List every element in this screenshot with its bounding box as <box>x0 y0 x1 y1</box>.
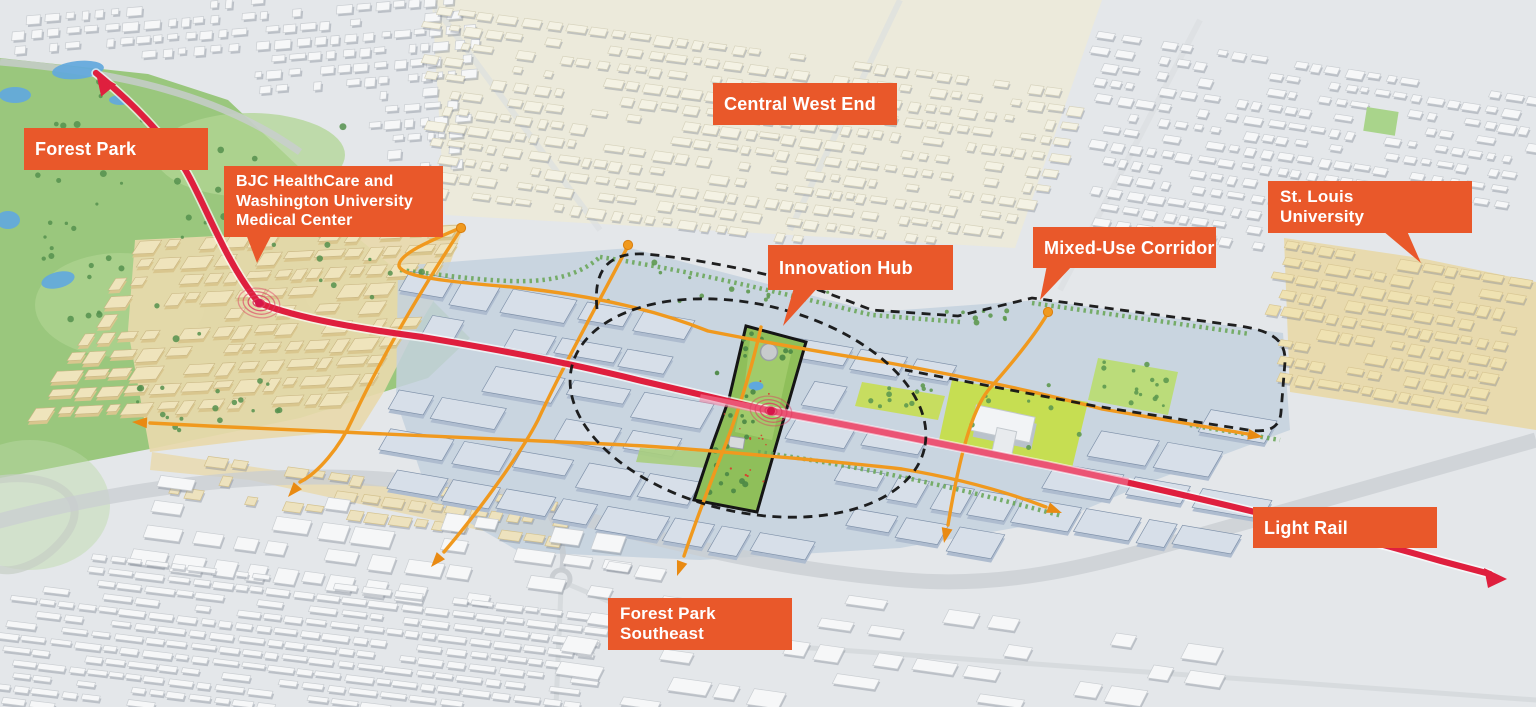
building <box>432 42 448 52</box>
building <box>1210 189 1223 196</box>
building <box>232 28 247 35</box>
tree <box>217 417 223 423</box>
tree <box>988 313 992 317</box>
building <box>409 0 420 8</box>
label-text: Southeast <box>620 624 792 644</box>
building <box>336 5 352 14</box>
building <box>591 533 626 553</box>
building <box>122 22 138 32</box>
building <box>211 15 219 23</box>
building <box>163 49 173 58</box>
building <box>1489 91 1502 99</box>
building <box>256 625 272 632</box>
building <box>251 0 264 4</box>
tree <box>56 178 61 183</box>
building <box>1016 199 1038 210</box>
building <box>45 13 60 21</box>
building <box>242 12 255 19</box>
tree <box>181 236 184 239</box>
building <box>1294 61 1309 69</box>
building <box>861 211 879 220</box>
tree <box>1102 360 1106 364</box>
label-text: BJC HealthCare and <box>236 172 443 192</box>
building <box>1318 96 1332 103</box>
street-node-dot <box>623 240 632 249</box>
tree <box>1132 369 1136 373</box>
building <box>786 218 803 226</box>
building <box>910 201 926 209</box>
building <box>773 68 787 77</box>
building <box>987 228 1003 237</box>
tree <box>232 400 237 405</box>
building <box>287 358 319 367</box>
tree <box>886 391 892 397</box>
building <box>485 679 501 687</box>
tree <box>729 286 735 292</box>
tree <box>136 400 139 403</box>
building <box>1279 290 1296 300</box>
tree <box>1102 385 1106 389</box>
tree <box>719 481 723 485</box>
tree <box>1101 365 1106 370</box>
building <box>409 44 416 53</box>
tree <box>768 393 770 395</box>
tree <box>154 303 159 308</box>
tree <box>215 187 221 193</box>
building <box>1026 101 1045 111</box>
tree <box>160 412 166 418</box>
building <box>313 82 321 91</box>
building <box>748 48 761 55</box>
building <box>200 31 213 40</box>
building <box>617 64 630 72</box>
tree <box>54 122 59 127</box>
building <box>167 34 177 40</box>
tree <box>724 413 726 415</box>
tree <box>888 398 892 402</box>
building <box>534 86 552 96</box>
tree <box>339 123 346 130</box>
building <box>308 52 321 61</box>
building <box>1117 97 1134 107</box>
building <box>812 205 830 215</box>
building <box>369 121 381 127</box>
building <box>272 55 285 62</box>
tree <box>909 401 914 406</box>
tree <box>257 378 263 384</box>
tree <box>915 389 919 393</box>
building <box>169 19 177 27</box>
building <box>31 30 42 39</box>
building <box>26 15 40 25</box>
tree <box>715 371 720 376</box>
building <box>360 48 371 57</box>
building <box>514 133 526 141</box>
building <box>547 22 563 31</box>
building <box>424 102 440 108</box>
tree <box>272 243 276 247</box>
building <box>91 554 107 561</box>
building <box>219 30 227 38</box>
tree <box>887 386 891 390</box>
building <box>901 150 914 158</box>
label-text: Light Rail <box>1264 519 1437 537</box>
label-bjc-medical-center: BJC HealthCare and Washington University… <box>224 166 443 237</box>
label-text: Medical Center <box>236 211 443 231</box>
building <box>1044 87 1062 96</box>
building <box>544 170 566 181</box>
building <box>1228 145 1239 152</box>
building <box>474 517 499 530</box>
tree <box>1163 377 1169 383</box>
building <box>231 460 249 469</box>
tree <box>826 291 829 294</box>
building <box>662 218 672 224</box>
building <box>894 67 910 76</box>
tree <box>1162 404 1165 407</box>
building <box>193 17 203 24</box>
tree <box>186 214 192 220</box>
building <box>649 51 665 60</box>
building <box>65 41 79 48</box>
building <box>210 0 217 8</box>
building <box>49 43 57 52</box>
building <box>186 32 196 39</box>
building <box>935 155 950 162</box>
building <box>131 687 146 694</box>
building <box>444 0 454 5</box>
building <box>289 68 301 75</box>
tree <box>762 438 764 440</box>
building <box>111 8 118 14</box>
building <box>336 356 368 365</box>
tree <box>779 354 785 360</box>
building <box>634 66 646 72</box>
tree <box>48 253 54 259</box>
building <box>856 128 869 136</box>
tree <box>118 265 124 271</box>
building <box>144 20 161 29</box>
building <box>374 61 386 67</box>
tree <box>50 246 54 250</box>
tree <box>106 255 112 261</box>
label-text: Mixed-Use Corridor <box>1044 239 1216 257</box>
tree <box>370 295 375 300</box>
building <box>1147 164 1162 172</box>
building <box>967 93 982 101</box>
building <box>260 11 267 19</box>
tree <box>745 394 749 398</box>
building <box>902 167 917 176</box>
tree <box>1129 400 1134 405</box>
building <box>404 119 413 128</box>
tree <box>251 409 254 412</box>
building <box>282 502 304 513</box>
tree <box>1026 445 1031 450</box>
building <box>1261 134 1274 142</box>
tree <box>731 488 736 493</box>
building <box>374 47 385 53</box>
street-node-dot <box>1043 307 1052 316</box>
building <box>921 170 933 177</box>
tree <box>725 472 729 476</box>
building <box>107 39 115 48</box>
building <box>815 189 831 197</box>
building <box>345 34 357 43</box>
tree <box>177 428 181 432</box>
building <box>925 121 936 128</box>
building <box>357 3 371 10</box>
building <box>464 159 476 166</box>
building <box>463 27 483 38</box>
building <box>142 50 156 58</box>
building <box>1210 126 1221 132</box>
building <box>264 652 278 659</box>
building <box>513 83 529 92</box>
building <box>939 106 952 113</box>
tree <box>74 121 81 128</box>
building <box>315 36 327 45</box>
building <box>614 179 630 187</box>
building <box>929 88 948 98</box>
building <box>317 522 350 542</box>
building <box>225 0 232 9</box>
plaza-circle <box>761 344 778 361</box>
pavilion-building <box>728 436 745 449</box>
building <box>626 48 643 57</box>
tree <box>1144 362 1149 367</box>
building <box>393 135 404 141</box>
building <box>201 619 216 626</box>
building <box>1031 151 1045 158</box>
building <box>324 497 350 511</box>
building <box>925 236 936 243</box>
building <box>297 38 310 47</box>
building <box>1191 186 1205 194</box>
building <box>653 36 673 47</box>
building <box>1360 87 1369 93</box>
building <box>13 686 29 694</box>
building <box>175 654 189 660</box>
building <box>999 147 1012 155</box>
tree <box>317 255 323 261</box>
building <box>62 692 78 699</box>
building <box>535 185 549 192</box>
building <box>695 157 712 167</box>
building <box>1102 157 1115 164</box>
building <box>436 7 453 16</box>
building <box>983 178 999 186</box>
station-dot <box>255 299 263 307</box>
building <box>363 33 374 42</box>
building <box>266 25 279 31</box>
building <box>353 637 368 645</box>
tree <box>758 438 760 440</box>
building <box>421 632 436 639</box>
building <box>593 159 608 167</box>
tree <box>922 387 926 391</box>
label-forest-park: Forest Park <box>24 128 208 170</box>
building <box>955 75 969 83</box>
tree <box>688 276 691 279</box>
building <box>127 7 143 17</box>
building <box>292 9 301 17</box>
building <box>476 12 493 21</box>
building <box>320 21 330 30</box>
building <box>276 84 288 91</box>
tree <box>100 170 107 177</box>
tree <box>746 289 750 293</box>
building <box>363 512 388 525</box>
building <box>1246 225 1262 234</box>
tree <box>368 258 371 261</box>
building <box>394 60 406 69</box>
building <box>274 39 291 49</box>
building <box>905 184 919 191</box>
building <box>382 31 391 37</box>
building <box>1004 114 1014 120</box>
label-innovation-hub: Innovation Hub <box>768 245 953 290</box>
building <box>449 25 460 31</box>
tree <box>137 386 143 392</box>
tree <box>878 404 882 408</box>
building <box>256 41 269 50</box>
tree <box>42 256 46 260</box>
building <box>1485 106 1498 113</box>
building <box>1176 59 1191 67</box>
building <box>1301 244 1316 253</box>
tree <box>868 398 873 403</box>
tree <box>766 295 769 298</box>
building <box>1174 121 1188 128</box>
tree <box>744 435 749 440</box>
tree <box>252 156 258 162</box>
building <box>585 208 606 219</box>
building <box>830 174 840 181</box>
building <box>958 109 978 119</box>
tree <box>1003 317 1007 321</box>
tree <box>89 263 94 268</box>
tree <box>745 474 747 476</box>
tree <box>276 407 282 413</box>
building <box>651 151 674 163</box>
building <box>611 30 625 38</box>
building <box>499 163 508 169</box>
building <box>84 25 97 32</box>
tree <box>788 349 793 354</box>
tree <box>238 397 244 403</box>
building <box>1066 106 1084 117</box>
tree <box>765 444 767 446</box>
label-central-west-end: Central West End <box>713 83 897 125</box>
building <box>394 30 410 38</box>
label-text: Washington University <box>236 192 443 212</box>
building <box>1161 150 1174 157</box>
tree <box>418 269 425 276</box>
building <box>218 621 232 629</box>
building <box>1193 124 1203 130</box>
building <box>1438 130 1453 138</box>
building <box>385 105 397 111</box>
building <box>1407 141 1417 147</box>
tree <box>1150 378 1154 382</box>
building <box>940 172 954 179</box>
building <box>121 37 134 44</box>
building <box>884 165 897 171</box>
building <box>103 645 117 652</box>
building <box>350 19 360 26</box>
tree <box>904 403 908 407</box>
spine-pond <box>749 382 764 391</box>
building <box>527 658 542 665</box>
label-text: Forest Park <box>620 604 792 624</box>
tree <box>86 313 92 319</box>
building <box>194 46 205 56</box>
building <box>791 70 809 80</box>
building <box>734 178 746 185</box>
tree <box>743 354 747 358</box>
building <box>326 51 335 59</box>
tree <box>1004 308 1009 313</box>
building <box>850 144 866 153</box>
tree <box>43 235 46 238</box>
building <box>445 565 472 580</box>
building <box>425 71 439 79</box>
building <box>626 114 642 121</box>
tree <box>728 413 733 418</box>
building <box>178 48 186 54</box>
building <box>95 10 104 18</box>
building <box>514 116 533 126</box>
building <box>1110 80 1123 87</box>
building <box>899 84 912 91</box>
building <box>264 541 288 555</box>
tree <box>730 467 732 469</box>
label-st-louis-university: St. Louis University <box>1268 181 1472 233</box>
building <box>523 101 543 112</box>
building <box>838 225 854 233</box>
building <box>1217 50 1228 56</box>
building <box>858 227 873 235</box>
building <box>82 11 89 20</box>
building <box>824 157 841 166</box>
building <box>266 70 281 79</box>
building <box>229 44 239 52</box>
tree <box>749 331 754 336</box>
building <box>347 78 361 85</box>
tree <box>35 172 40 177</box>
building <box>608 46 622 55</box>
building <box>775 183 787 189</box>
building <box>379 76 389 83</box>
tree <box>1047 383 1051 387</box>
building <box>682 105 700 115</box>
building <box>792 235 804 242</box>
tree <box>48 221 53 226</box>
building <box>211 45 221 52</box>
building <box>545 38 562 47</box>
building <box>950 91 961 98</box>
building <box>998 196 1016 205</box>
building <box>485 30 504 40</box>
label-text: Forest Park <box>35 140 208 158</box>
tree <box>71 226 76 231</box>
tree <box>750 389 755 394</box>
building <box>948 190 961 197</box>
building <box>408 133 421 140</box>
tree <box>1155 383 1159 387</box>
building <box>1284 241 1299 250</box>
